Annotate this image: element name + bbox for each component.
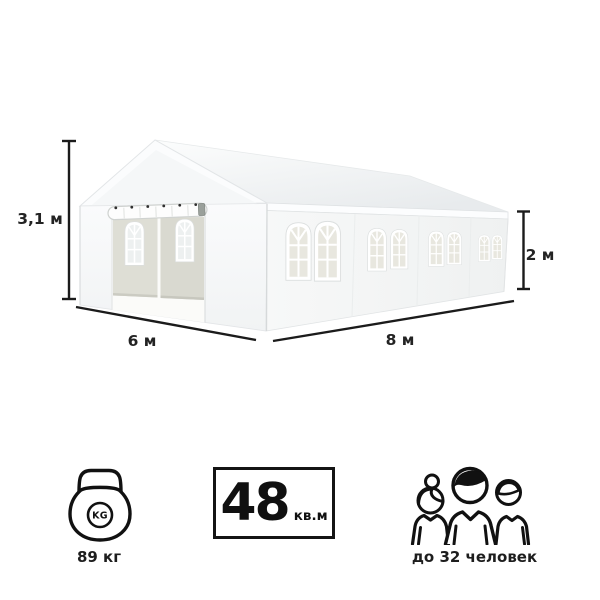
- side-window: [391, 230, 408, 269]
- side-window: [478, 235, 490, 262]
- length-dimension-label: 8 м: [386, 331, 415, 349]
- weight-label: 89 кг: [49, 548, 149, 566]
- product-dimension-diagram: 3,1 м 6 м 8 м 2 м KG 89 кг 48 кв.м: [0, 0, 600, 600]
- side-window: [314, 221, 340, 281]
- wall-height-dimension-label: 2 м: [526, 246, 555, 264]
- canopy-end-cap: [198, 203, 205, 215]
- side-window: [447, 232, 461, 265]
- area-value: 48: [220, 477, 288, 529]
- kettlebell-icon: KG: [67, 466, 133, 544]
- tent-illustration: 3,1 м 6 м 8 м 2 м: [0, 0, 600, 460]
- side-window: [492, 235, 503, 260]
- kg-badge: KG: [92, 511, 108, 522]
- door-window: [125, 222, 144, 266]
- people-icon: [410, 464, 534, 545]
- area-box: 48 кв.м: [213, 467, 335, 539]
- tent-doorway: [108, 203, 207, 323]
- person-man-right: [496, 481, 529, 545]
- height-dimension-label: 3,1 м: [17, 210, 63, 228]
- side-window: [286, 223, 311, 281]
- side-window: [429, 231, 444, 266]
- door-window: [175, 219, 194, 262]
- side-window: [368, 228, 387, 271]
- capacity-label: до 32 человек: [409, 548, 540, 566]
- area-unit: кв.м: [294, 508, 328, 524]
- corner-seam: [267, 204, 268, 331]
- person-man-center: [446, 469, 496, 545]
- person-woman: [413, 475, 449, 544]
- width-dimension-label: 6 м: [128, 332, 157, 350]
